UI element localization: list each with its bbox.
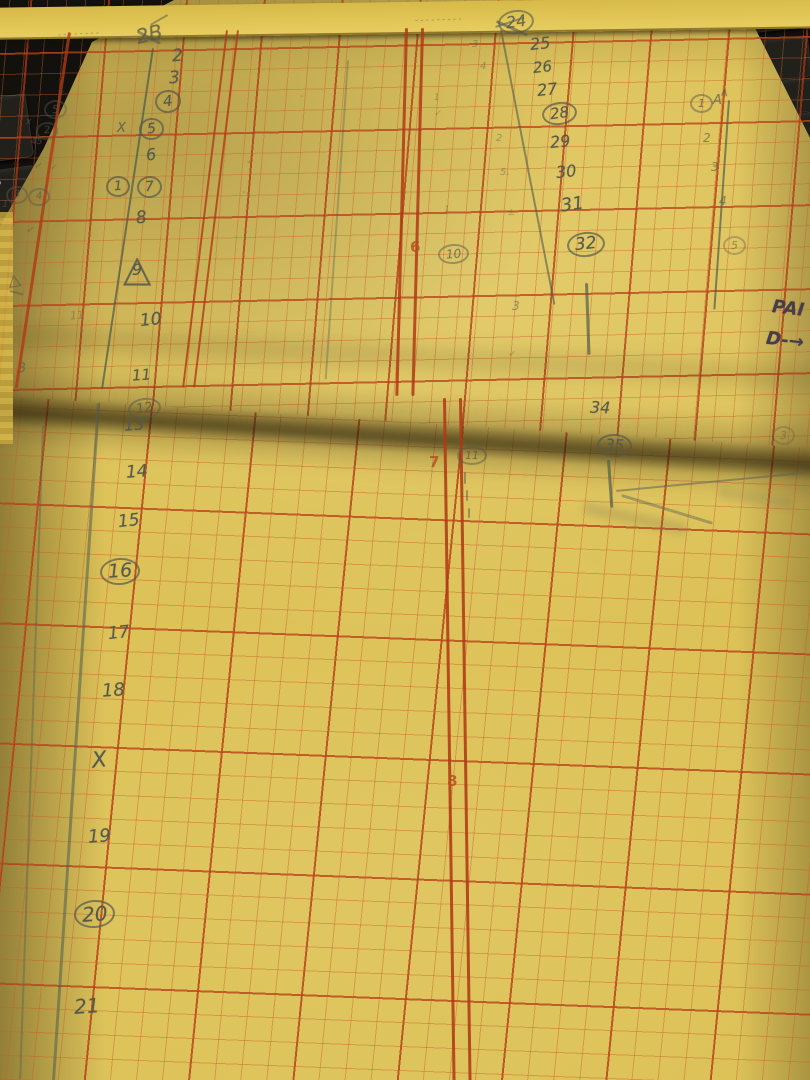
- margin-45: 45: [31, 138, 42, 147]
- row-number-15: 15: [117, 512, 140, 531]
- tick-f: ✓: [245, 158, 254, 168]
- rcol-1a: 1: [434, 94, 440, 103]
- row-number-5-circled: 5: [138, 117, 165, 141]
- tick-e: ‐: [250, 128, 254, 138]
- margin-triangle-doodle: △: [7, 271, 22, 289]
- row-number-11: 11: [132, 367, 152, 383]
- printed-column-7: 7: [429, 455, 439, 470]
- margin-check-1: ✓: [33, 161, 43, 172]
- margin-x: x: [26, 118, 31, 127]
- margin-3-faint: 3: [18, 362, 27, 376]
- rcol-check2: ✓: [507, 349, 517, 360]
- handwriting-layer: 2B234X561789101112131415161718X1920215x2…: [0, 0, 810, 1080]
- margin-11-faint: 11: [70, 310, 85, 322]
- row-number-18: 18: [101, 681, 125, 701]
- row-number-6: 6: [145, 146, 157, 163]
- row-number-30: 30: [555, 163, 577, 181]
- row-number-12-circled: 12: [127, 396, 162, 421]
- tick-b: ✓: [57, 90, 66, 100]
- edge-text-pai: PAI: [771, 298, 805, 320]
- header-marks-right: ‐ ‐ ‐ ‐ ‐ ‐ ‐ ‐ ‐: [415, 15, 462, 25]
- rcol-4: 4: [480, 62, 486, 72]
- row-number-27: 27: [536, 81, 558, 99]
- photo-ledger-on-keyboard: % 5 9 PgUp 2B234X56178910111213141516171…: [0, 0, 810, 1080]
- row-number-9-triangled: 9: [132, 262, 142, 278]
- section-10-circled: 10: [437, 243, 470, 265]
- rmargin-4: 4: [719, 195, 727, 207]
- doodle-top-left: 2B: [134, 21, 165, 47]
- row-number-19: 19: [87, 827, 111, 847]
- margin-check-2: ✓: [25, 225, 35, 236]
- row-number-10: 10: [139, 311, 162, 330]
- header-marks-left: ‐ ‐ ‐ ‐ ‐ ‐ ‐ ‐: [58, 29, 99, 39]
- row-number-34: 34: [590, 400, 611, 417]
- x-mark-large: X: [91, 749, 108, 772]
- row-number-14: 14: [125, 463, 148, 481]
- tick-c: ‐: [55, 128, 59, 138]
- row-number-26: 26: [532, 59, 553, 76]
- rmargin-A: A: [713, 94, 722, 107]
- row-number-29: 29: [549, 133, 571, 151]
- rcol-2: 2: [496, 134, 502, 144]
- rcol-check: ✓: [433, 110, 442, 120]
- tick-h: ‐: [300, 92, 304, 102]
- rcol-5: 5.: [500, 168, 510, 178]
- tick-a: ‐: [62, 54, 66, 64]
- margin-4-circled: 4: [27, 187, 51, 207]
- rcol-plusminus: ±: [507, 208, 515, 218]
- margin-1: 1: [2, 200, 8, 210]
- row-number-1-circled: 1: [105, 175, 131, 198]
- rmargin-2: 2: [703, 132, 711, 144]
- row-number-7-circled: 7: [136, 175, 162, 199]
- rcol-3: 3: [472, 40, 478, 50]
- rmargin-arrowhead: ∧: [720, 86, 730, 99]
- rmargin-5-circled: 5: [723, 236, 746, 255]
- printed-column-6: 6: [410, 240, 420, 255]
- rmargin-3-circled-faint: 3: [772, 426, 795, 445]
- tick-g: ‐: [242, 188, 246, 198]
- rcol-3b: 3: [512, 300, 520, 312]
- edge-text-d-arrow: D-→: [765, 330, 805, 352]
- margin-3-circled: 3: [5, 185, 29, 205]
- row-number-3: 3: [168, 70, 180, 88]
- row-number-21: 21: [73, 995, 100, 1017]
- row-number-25: 25: [529, 35, 551, 53]
- row-number-35-circled: 35: [597, 433, 633, 457]
- margin-5-circled: 5: [43, 99, 68, 120]
- row-number-28-circled: 28: [541, 100, 579, 128]
- row-number-13: 13: [123, 416, 144, 433]
- rcol-1b: 1: [444, 206, 450, 215]
- section-11-circled: 11: [457, 446, 487, 465]
- row-number-16-circled: 16: [99, 557, 141, 587]
- printed-column-8: 8: [447, 774, 457, 789]
- row-number-31: 31: [560, 194, 585, 215]
- margin-2-circled: 2: [35, 121, 59, 141]
- row-number-2: 2: [171, 48, 183, 66]
- x-mark-small: X: [117, 122, 126, 135]
- row-number-8: 8: [135, 209, 148, 227]
- row-number-24-circled-scribble: 24: [497, 8, 536, 37]
- rmargin-1-circled: 1: [690, 94, 713, 113]
- rmargin-3: 3: [711, 161, 719, 173]
- row-number-4-circled: 4: [154, 89, 182, 115]
- tick-d: ✓: [49, 164, 58, 174]
- row-number-20-circled: 20: [73, 899, 116, 930]
- row-number-17: 17: [107, 624, 130, 643]
- row-number-32-circled: 32: [566, 230, 606, 259]
